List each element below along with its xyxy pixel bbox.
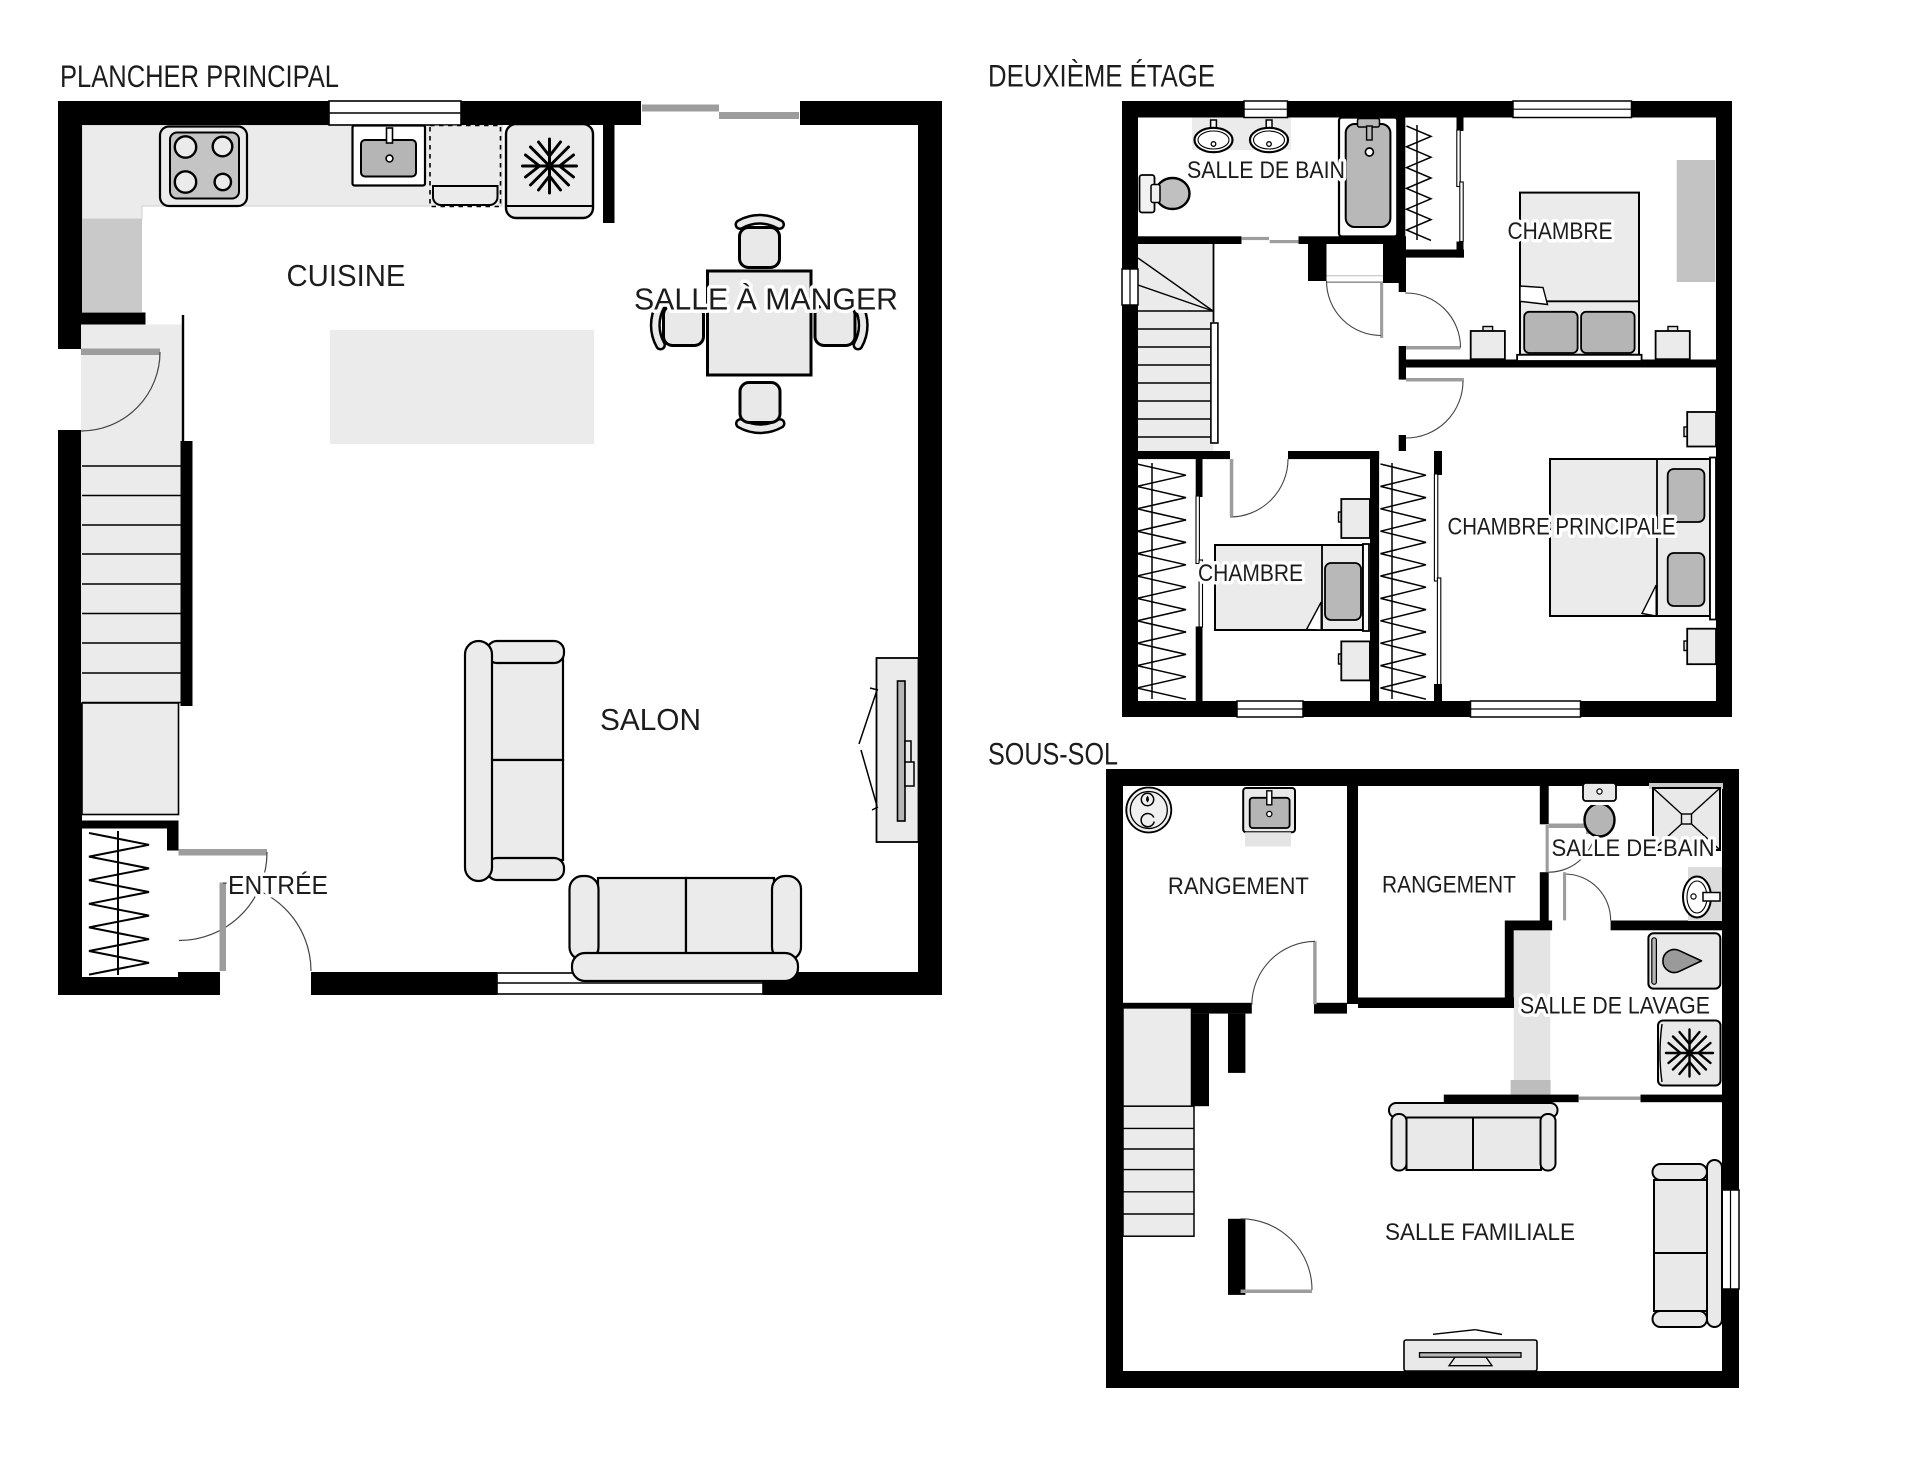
svg-text:SALON: SALON — [600, 702, 701, 737]
svg-text:RANGEMENT: RANGEMENT — [1168, 873, 1309, 900]
svg-text:ENTRÉE: ENTRÉE — [228, 870, 328, 900]
svg-text:CHAMBRE: CHAMBRE — [1198, 560, 1303, 587]
svg-text:SALLE À MANGER: SALLE À MANGER — [634, 282, 898, 317]
svg-text:SALLE FAMILIALE: SALLE FAMILIALE — [1385, 1219, 1575, 1246]
svg-text:CUISINE: CUISINE — [287, 258, 406, 293]
svg-text:SALLE DE BAIN: SALLE DE BAIN — [1552, 835, 1715, 862]
svg-text:CHAMBRE PRINCIPALE: CHAMBRE PRINCIPALE — [1448, 514, 1676, 541]
svg-text:SALLE DE LAVAGE: SALLE DE LAVAGE — [1520, 993, 1710, 1020]
svg-text:CHAMBRE: CHAMBRE — [1508, 218, 1613, 245]
svg-text:SOUS-SOL: SOUS-SOL — [988, 736, 1118, 772]
svg-text:PLANCHER PRINCIPAL: PLANCHER PRINCIPAL — [60, 58, 339, 94]
svg-text:RANGEMENT: RANGEMENT — [1382, 872, 1516, 899]
svg-text:SALLE DE BAIN: SALLE DE BAIN — [1187, 157, 1345, 184]
svg-text:DEUXIÈME ÉTAGE: DEUXIÈME ÉTAGE — [988, 58, 1215, 94]
